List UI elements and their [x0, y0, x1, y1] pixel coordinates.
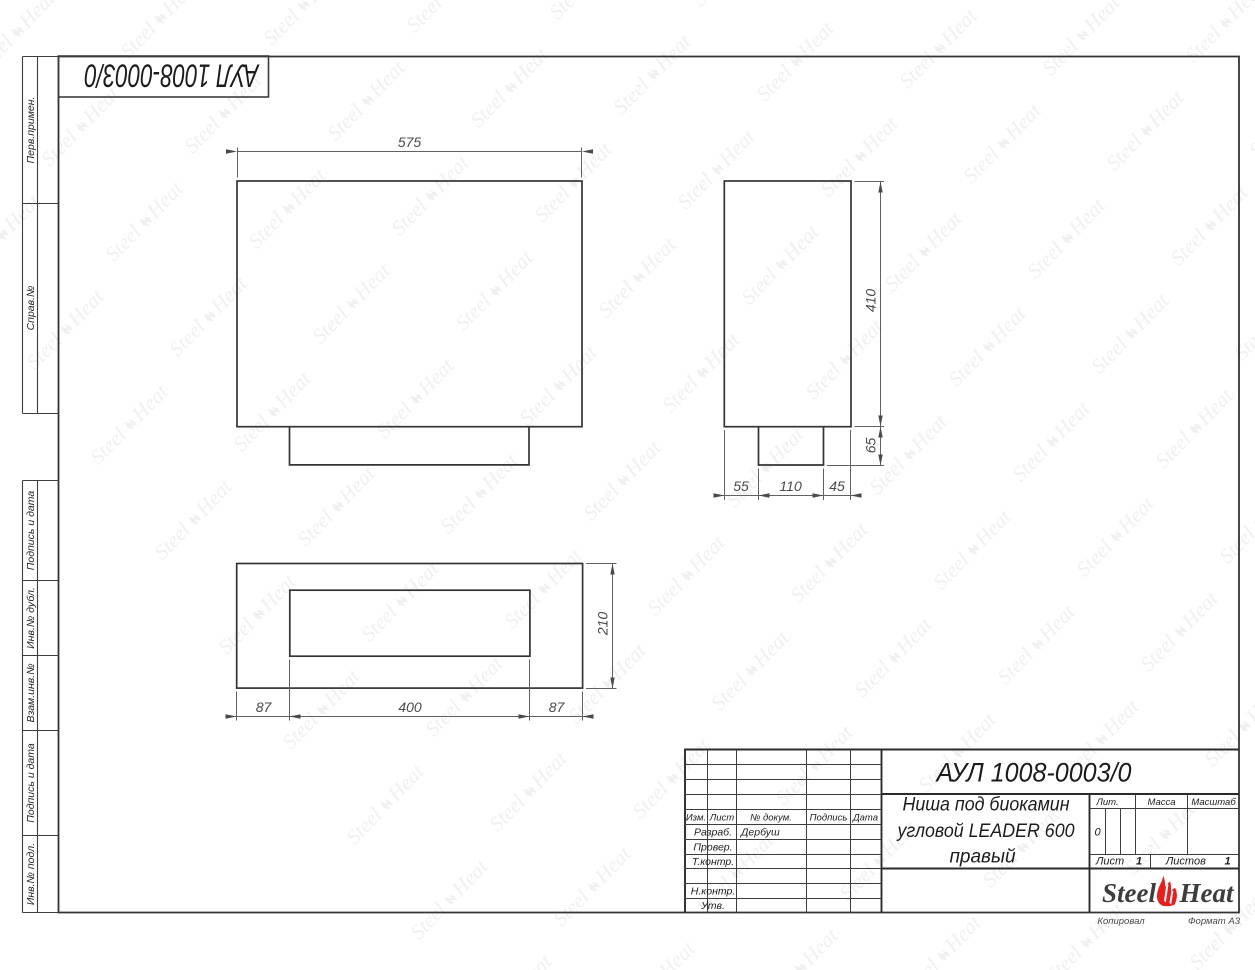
svg-text:1: 1	[1224, 856, 1230, 868]
svg-text:Лит.: Лит.	[1095, 797, 1118, 808]
svg-text:87: 87	[549, 699, 566, 715]
svg-text:1: 1	[1136, 856, 1142, 868]
svg-text:Взам.инв.№: Взам.инв.№	[25, 663, 37, 722]
svg-text:Провер.: Провер.	[693, 842, 732, 854]
svg-text:210: 210	[595, 612, 611, 637]
svg-text:0: 0	[1095, 827, 1102, 839]
svg-text:Heat: Heat	[1179, 878, 1235, 908]
svg-text:АУЛ 1008-0003/0: АУЛ 1008-0003/0	[935, 757, 1132, 787]
svg-text:Steel: Steel	[1102, 878, 1156, 908]
svg-text:Подпись и дата: Подпись и дата	[25, 743, 37, 823]
svg-text:угловой LEADER 600: угловой LEADER 600	[896, 821, 1075, 842]
svg-text:Дата: Дата	[852, 813, 878, 824]
svg-text:Перв.примен.: Перв.примен.	[25, 97, 37, 164]
svg-text:575: 575	[398, 134, 422, 150]
svg-text:45: 45	[829, 478, 845, 494]
svg-text:Подпись: Подпись	[810, 813, 848, 824]
svg-text:Т.контр.: Т.контр.	[692, 856, 734, 868]
svg-text:Ниша под биокамин: Ниша под биокамин	[903, 795, 1071, 816]
svg-text:Утв.: Утв.	[700, 900, 725, 912]
svg-text:Инв.№ дубл.: Инв.№ дубл.	[25, 587, 37, 649]
svg-text:410: 410	[863, 289, 879, 313]
svg-text:Лист: Лист	[709, 813, 735, 824]
svg-text:Копировал: Копировал	[1097, 916, 1145, 927]
svg-text:Масштаб: Масштаб	[1191, 797, 1236, 808]
svg-text:400: 400	[398, 699, 422, 715]
svg-text:Листов: Листов	[1165, 856, 1206, 868]
svg-text:Лист: Лист	[1095, 856, 1124, 868]
svg-text:Н.контр.: Н.контр.	[691, 886, 735, 898]
svg-text:Формат А3: Формат А3	[1188, 916, 1241, 927]
svg-text:№ докум.: № докум.	[750, 813, 792, 824]
svg-text:110: 110	[779, 478, 802, 494]
svg-text:Разраб.: Разраб.	[694, 827, 732, 839]
svg-text:65: 65	[863, 438, 879, 454]
svg-text:Масса: Масса	[1147, 797, 1175, 808]
svg-text:Дербуш: Дербуш	[740, 827, 780, 839]
svg-text:Инв.№ подл.: Инв.№ подл.	[25, 843, 37, 905]
svg-text:87: 87	[256, 699, 273, 715]
svg-text:АУЛ 1008-0003/0: АУЛ 1008-0003/0	[85, 58, 260, 94]
svg-text:55: 55	[733, 478, 749, 494]
svg-text:правый: правый	[949, 847, 1015, 868]
svg-text:Справ.№: Справ.№	[25, 286, 37, 331]
svg-text:Подпись и дата: Подпись и дата	[25, 491, 37, 571]
svg-text:Изм.: Изм.	[686, 813, 706, 824]
